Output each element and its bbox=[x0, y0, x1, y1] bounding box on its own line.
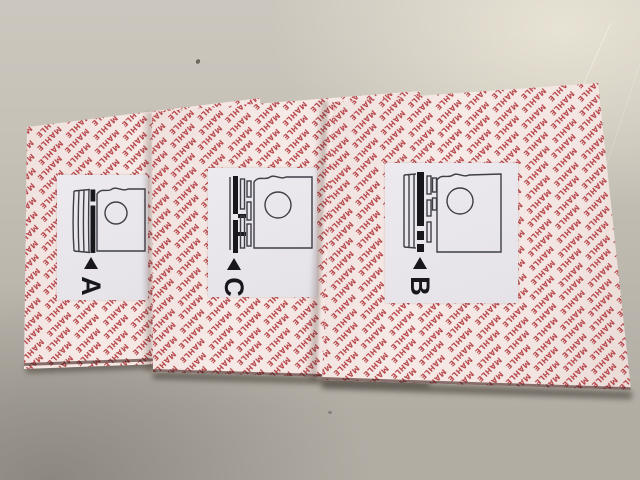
up-arrow-icon bbox=[227, 258, 241, 270]
label-a: A bbox=[57, 175, 148, 300]
packet-b: MAHLE MAHLE MAHLE MAHLE MAHLE MAHLE MAHL… bbox=[315, 75, 635, 395]
packet-c-edge-shadow bbox=[142, 112, 152, 372]
ring-position-letter: B bbox=[405, 272, 435, 300]
label-b: B bbox=[385, 163, 518, 303]
piston-cross-section-diagram bbox=[228, 172, 316, 256]
ring-position-mark: C bbox=[220, 258, 248, 302]
piston-cross-section-diagram bbox=[71, 185, 149, 257]
up-arrow-icon bbox=[413, 257, 427, 269]
ring-position-letter: A bbox=[76, 272, 106, 300]
label-c: C bbox=[208, 168, 317, 297]
piston-cross-section-diagram bbox=[403, 170, 519, 262]
up-arrow-icon bbox=[84, 257, 98, 269]
table-speck bbox=[328, 411, 332, 414]
ring-position-letter: C bbox=[219, 273, 249, 301]
ring-position-mark: A bbox=[77, 257, 105, 301]
ring-position-mark: B bbox=[406, 257, 434, 301]
photo-scene: MAHLE MAHLE MAHLE MAHLE MAHLE MAHLE MAHL… bbox=[0, 0, 640, 480]
